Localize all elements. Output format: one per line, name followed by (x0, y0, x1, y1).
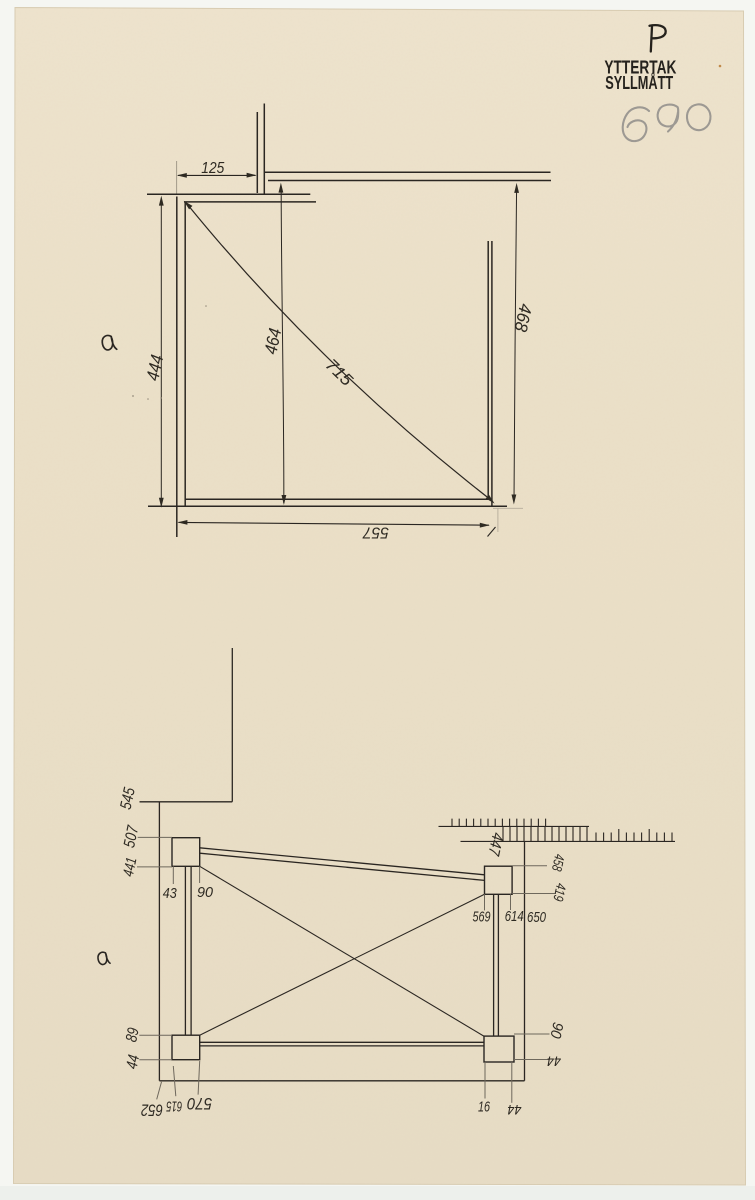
svg-text:43: 43 (163, 885, 178, 902)
svg-text:615: 615 (166, 1097, 182, 1114)
svg-text:652: 652 (141, 1100, 163, 1119)
svg-text:650: 650 (527, 909, 546, 926)
svg-text:125: 125 (201, 160, 224, 177)
svg-text:570: 570 (187, 1094, 212, 1113)
svg-text:90: 90 (197, 884, 214, 901)
svg-text:614: 614 (505, 908, 524, 925)
svg-text:16: 16 (478, 1099, 490, 1116)
svg-text:SYLLMÅTT: SYLLMÅTT (605, 73, 673, 93)
svg-text:44: 44 (507, 1102, 521, 1118)
svg-text:569: 569 (473, 909, 491, 926)
svg-text:44: 44 (547, 1054, 561, 1070)
svg-text:557: 557 (362, 524, 389, 541)
